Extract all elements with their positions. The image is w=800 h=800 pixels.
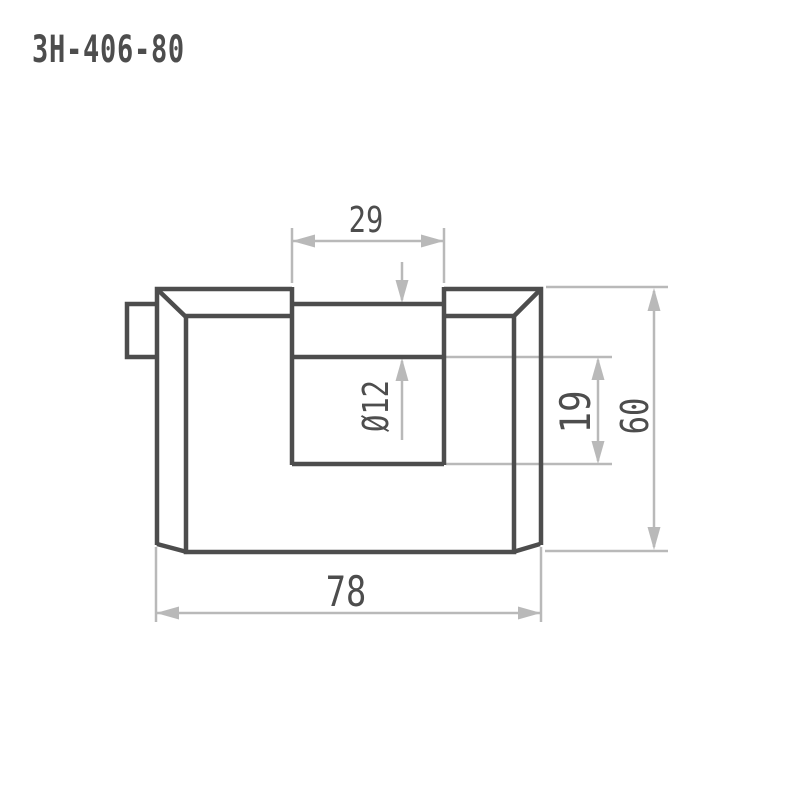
- padlock-body-outline: [127, 287, 541, 552]
- arrow-60-up: [648, 288, 661, 311]
- padlock-technical-drawing: [0, 0, 800, 800]
- bevel-bottom-left: [157, 544, 187, 552]
- outer-right-top: [444, 289, 541, 545]
- arrow-o12-down: [396, 280, 409, 303]
- arrow-78-right: [518, 607, 541, 620]
- bevel-top-right: [513, 290, 540, 317]
- arrow-29-left: [292, 235, 315, 248]
- dimension-label-opening-height: 19: [554, 370, 598, 455]
- left-tab: [127, 304, 157, 357]
- arrow-29-right: [421, 235, 444, 248]
- arrow-78-left: [156, 607, 179, 620]
- bevel-top-left: [158, 290, 186, 317]
- arrow-60-down: [648, 527, 661, 550]
- shackle-rod: [292, 304, 444, 357]
- dimension-label-gap-width: 29: [326, 199, 406, 243]
- dimension-label-body-width: 78: [306, 570, 386, 614]
- outer-left-top: [157, 289, 292, 545]
- bevel-bottom-right: [513, 544, 540, 552]
- front-face: [186, 316, 514, 552]
- dimension-label-body-height: 60: [613, 376, 657, 456]
- drawing-canvas: ЗН-406-80: [0, 0, 800, 800]
- dimension-label-shackle-diameter: Ø12: [355, 358, 399, 454]
